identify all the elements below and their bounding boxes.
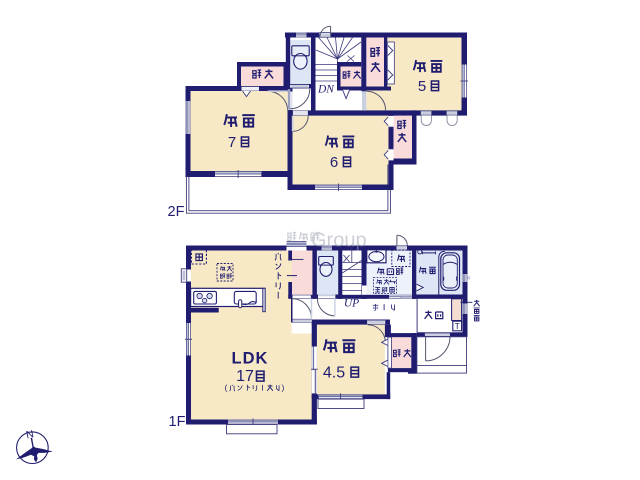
svg-text:T: T [455, 321, 460, 331]
svg-text:6: 6 [330, 154, 338, 171]
svg-text:DN: DN [317, 84, 335, 96]
svg-text:2F: 2F [168, 204, 185, 220]
svg-text:(: ( [225, 383, 228, 393]
svg-text:4.5: 4.5 [323, 365, 345, 382]
svg-text:): ) [282, 383, 285, 393]
svg-text:17: 17 [236, 368, 254, 385]
svg-text:1F: 1F [169, 414, 186, 430]
svg-text:UP: UP [344, 298, 359, 310]
svg-text:5: 5 [418, 78, 426, 95]
svg-text:7: 7 [228, 134, 236, 151]
svg-text:Group: Group [311, 230, 367, 252]
svg-text:LDK: LDK [232, 350, 269, 368]
